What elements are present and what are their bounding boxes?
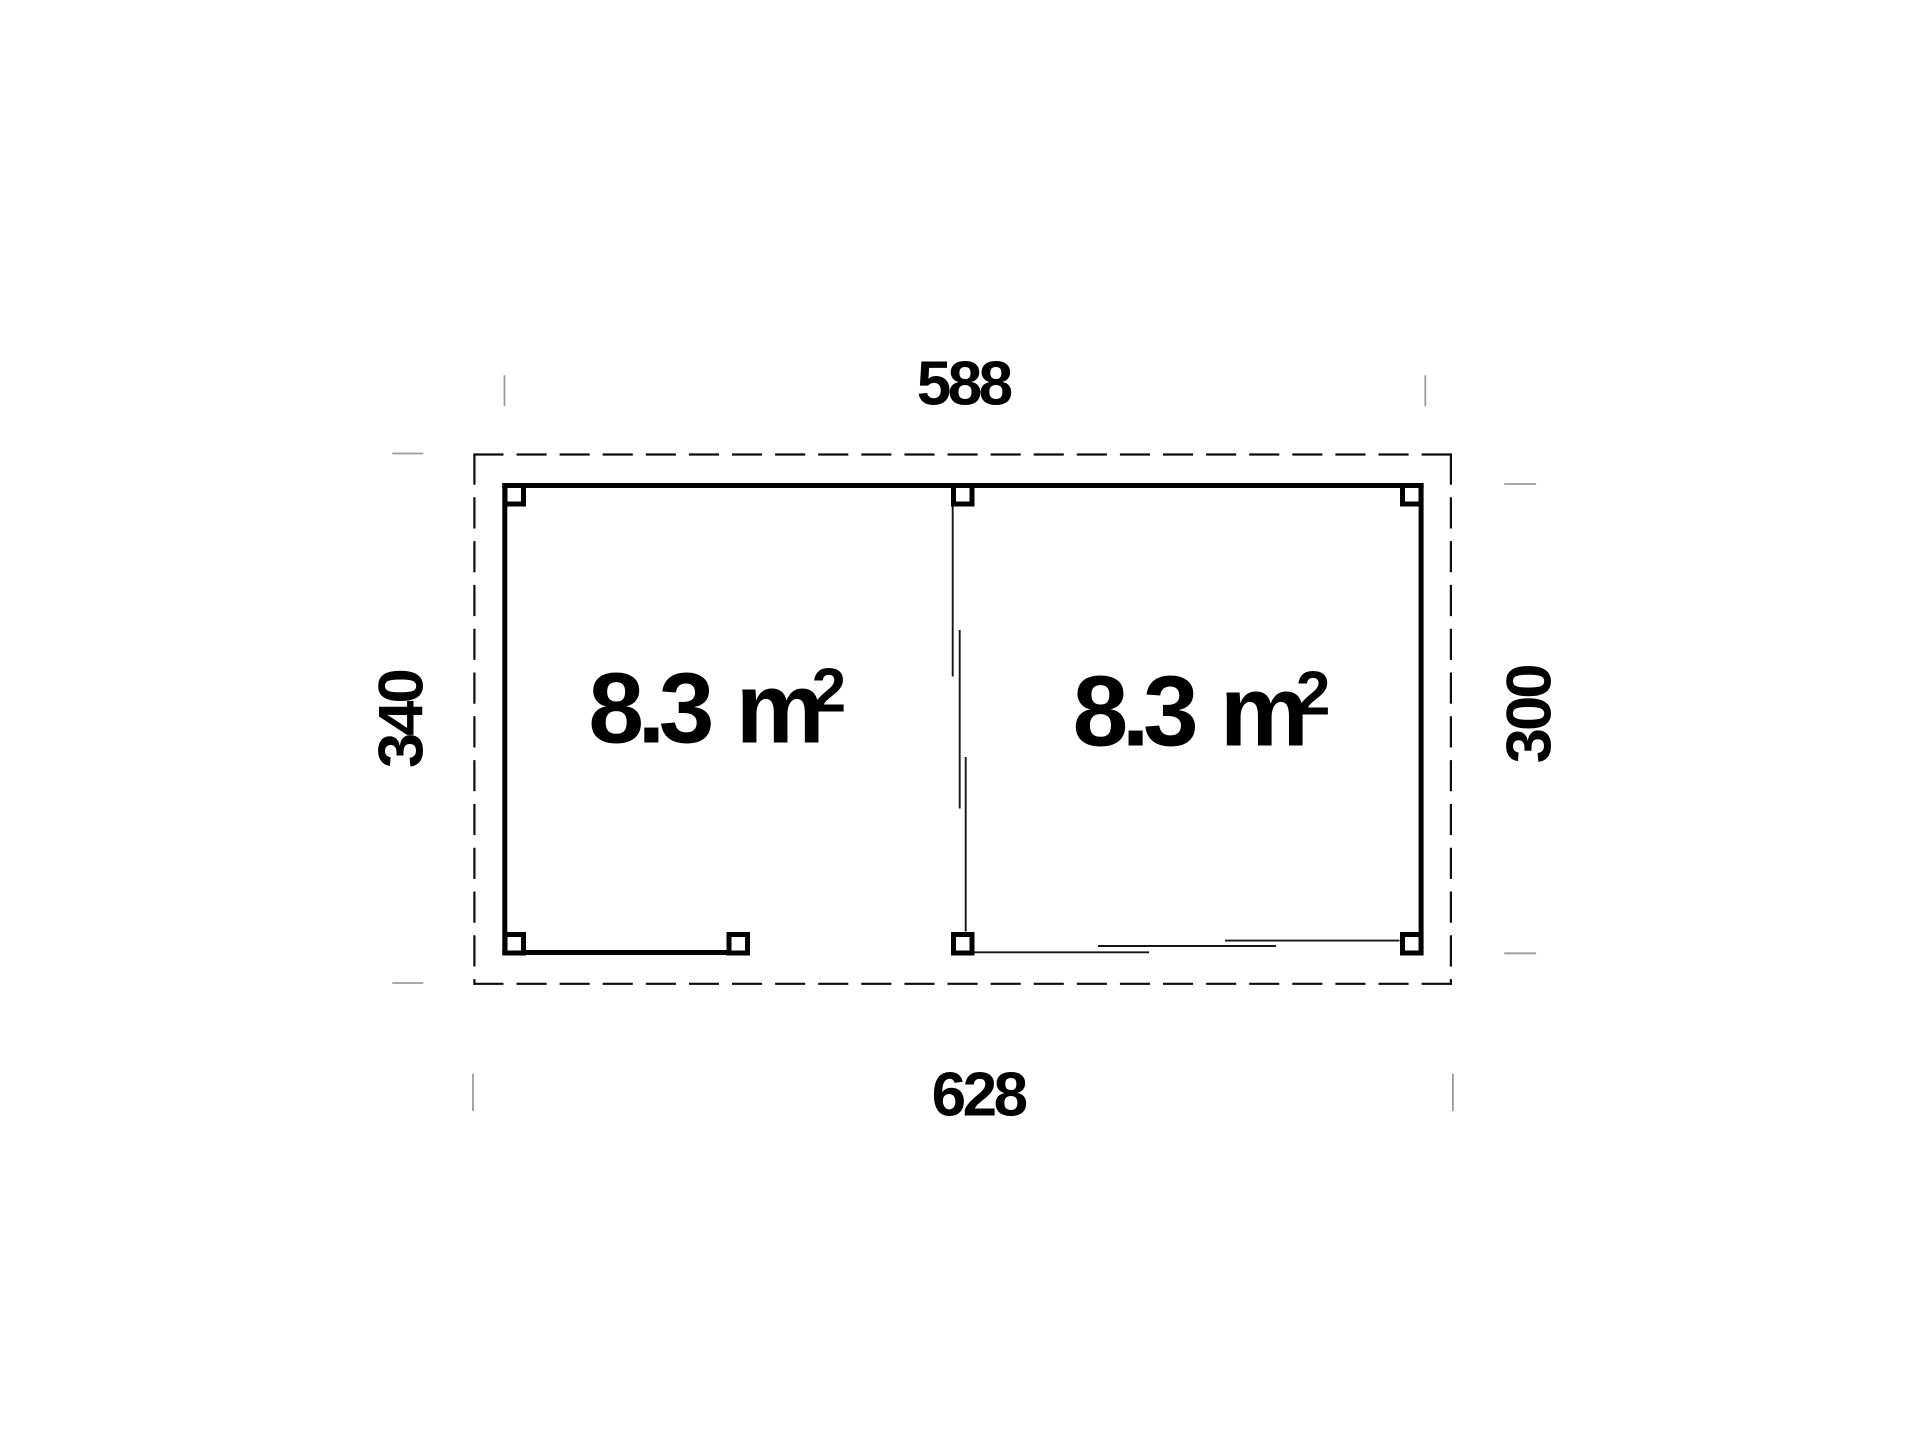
- svg-text:340: 340: [367, 671, 437, 769]
- svg-text:8.3 m2: 8.3 m2: [1073, 656, 1331, 768]
- svg-text:300: 300: [1494, 666, 1564, 764]
- svg-text:588: 588: [917, 350, 1012, 419]
- svg-text:628: 628: [932, 1061, 1027, 1130]
- svg-text:8.3 m2: 8.3 m2: [588, 653, 846, 765]
